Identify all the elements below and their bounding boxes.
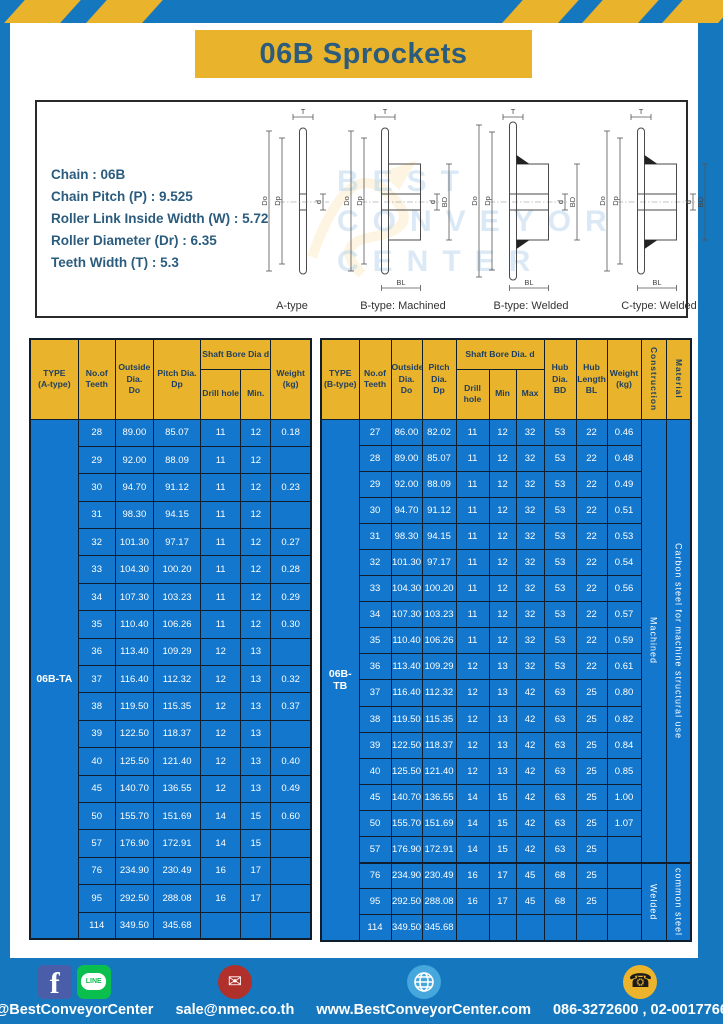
value-cell: 63 xyxy=(544,758,576,784)
value-cell: 114 xyxy=(78,912,115,939)
svg-text:Do: Do xyxy=(598,196,607,206)
value-cell: 14 xyxy=(456,784,489,810)
value-cell: 0.30 xyxy=(271,611,311,638)
value-cell: 42 xyxy=(516,837,544,863)
table-row: 06B-TA2889.0085.0711120.18 xyxy=(30,419,311,446)
value-cell: 32 xyxy=(78,529,115,556)
value-cell: 30 xyxy=(78,474,115,501)
facebook-icon[interactable]: f xyxy=(38,965,72,999)
sprocket-figures: TdDoDpA-typeTdBDBLDoDpB-type: MachinedTd… xyxy=(245,108,685,314)
table-row: 34107.30103.2311123253220.57 xyxy=(321,602,691,628)
value-cell: 112.32 xyxy=(422,680,456,706)
value-cell: 22 xyxy=(576,549,607,575)
value-cell: 45 xyxy=(78,775,115,802)
spec-table-b: TYPE (B-type) No.of Teeth Outside Dia. D… xyxy=(320,338,692,942)
value-cell: 17 xyxy=(489,863,516,889)
value-cell: 25 xyxy=(576,732,607,758)
value-cell: 12 xyxy=(241,446,271,473)
table-row: 39122.50118.3712134263250.84 xyxy=(321,732,691,758)
value-cell: 13 xyxy=(241,666,271,693)
value-cell: 11 xyxy=(456,549,489,575)
value-cell: 29 xyxy=(359,471,391,497)
value-cell: 35 xyxy=(359,628,391,654)
value-cell xyxy=(607,863,641,889)
value-cell: 0.57 xyxy=(607,602,641,628)
value-cell: 25 xyxy=(576,680,607,706)
svg-text:BD: BD xyxy=(696,196,705,207)
value-cell: 0.60 xyxy=(271,802,311,829)
value-cell: 53 xyxy=(544,549,576,575)
footer-website-group: www.BestConveyorCenter.com xyxy=(316,965,531,1018)
value-cell: 345.68 xyxy=(422,915,456,941)
value-cell: 11 xyxy=(201,501,241,528)
value-cell: 63 xyxy=(544,706,576,732)
value-cell: 16 xyxy=(456,863,489,889)
value-cell: 15 xyxy=(241,830,271,857)
value-cell: 12 xyxy=(489,471,516,497)
value-cell: 86.00 xyxy=(391,419,422,445)
value-cell: 39 xyxy=(359,732,391,758)
value-cell: 11 xyxy=(201,529,241,556)
value-cell xyxy=(544,915,576,941)
table-row: 50155.70151.6914154263251.07 xyxy=(321,810,691,836)
value-cell: 0.53 xyxy=(607,523,641,549)
value-cell: 12 xyxy=(201,720,241,747)
value-cell: 12 xyxy=(489,523,516,549)
value-cell: 38 xyxy=(78,693,115,720)
value-cell: 12 xyxy=(489,549,516,575)
table-row: 06B-TB2786.0082.0211123253220.46Machined… xyxy=(321,419,691,445)
value-cell: 53 xyxy=(544,497,576,523)
value-cell: 176.90 xyxy=(115,830,153,857)
value-cell: 37 xyxy=(78,666,115,693)
value-cell: 11 xyxy=(201,474,241,501)
value-cell: 288.08 xyxy=(153,885,200,912)
value-cell: 12 xyxy=(489,602,516,628)
value-cell xyxy=(241,912,271,939)
value-cell: 11 xyxy=(456,628,489,654)
value-cell: 12 xyxy=(489,576,516,602)
table-a-type: TYPE (A-type) No.of Teeth Outside Dia. D… xyxy=(29,338,312,940)
value-cell: 85.07 xyxy=(153,419,200,446)
value-cell: 68 xyxy=(544,863,576,889)
table-row: 38119.50115.3512134263250.82 xyxy=(321,706,691,732)
table-row: 40125.50121.4012134263250.85 xyxy=(321,758,691,784)
value-cell: 32 xyxy=(516,602,544,628)
col-header-drill-hole: Drill hole xyxy=(456,369,489,419)
value-cell: 57 xyxy=(359,837,391,863)
value-cell: 136.55 xyxy=(153,775,200,802)
svg-text:d: d xyxy=(428,200,437,204)
value-cell: 32 xyxy=(516,523,544,549)
value-cell: 115.35 xyxy=(153,693,200,720)
table-row: 57176.90172.911415426325 xyxy=(321,837,691,863)
table-row: 33104.30100.2011123253220.56 xyxy=(321,576,691,602)
svg-text:d: d xyxy=(684,200,693,204)
figure-caption: B-type: Welded xyxy=(493,300,568,312)
value-cell: 33 xyxy=(359,576,391,602)
value-cell: 12 xyxy=(489,445,516,471)
value-cell: 0.49 xyxy=(607,471,641,497)
value-cell: 53 xyxy=(544,602,576,628)
value-cell: 12 xyxy=(456,706,489,732)
value-cell: 35 xyxy=(78,611,115,638)
value-cell: 50 xyxy=(359,810,391,836)
value-cell: 94.70 xyxy=(391,497,422,523)
diagonal-stripe xyxy=(657,0,723,23)
value-cell: 22 xyxy=(576,576,607,602)
value-cell: 0.46 xyxy=(607,419,641,445)
value-cell: 104.30 xyxy=(115,556,153,583)
value-cell: 0.85 xyxy=(607,758,641,784)
value-cell: 38 xyxy=(359,706,391,732)
col-header-min: Min. xyxy=(241,369,271,419)
value-cell: 234.90 xyxy=(115,857,153,884)
type-label-cell: 06B-TB xyxy=(321,419,359,941)
col-header-max: Max xyxy=(516,369,544,419)
value-cell: 92.00 xyxy=(391,471,422,497)
value-cell: 11 xyxy=(201,419,241,446)
col-header-min: Min xyxy=(489,369,516,419)
value-cell: 30 xyxy=(359,497,391,523)
value-cell: 1.07 xyxy=(607,810,641,836)
value-cell: 34 xyxy=(359,602,391,628)
value-cell: 97.17 xyxy=(422,549,456,575)
value-cell: 32 xyxy=(516,497,544,523)
value-cell: 53 xyxy=(544,419,576,445)
value-cell: 16 xyxy=(201,857,241,884)
value-cell: 12 xyxy=(201,666,241,693)
value-cell: 37 xyxy=(359,680,391,706)
value-cell: 15 xyxy=(489,784,516,810)
value-cell: 12 xyxy=(241,556,271,583)
value-cell: 42 xyxy=(516,680,544,706)
table-row: 95292.50288.081617456825 xyxy=(321,889,691,915)
table-row: 114349.50345.68 xyxy=(321,915,691,941)
col-header-weight: Weight (kg) xyxy=(607,339,641,419)
value-cell: 94.15 xyxy=(422,523,456,549)
value-cell: 14 xyxy=(456,810,489,836)
value-cell: 140.70 xyxy=(391,784,422,810)
value-cell: 39 xyxy=(78,720,115,747)
value-cell: 0.82 xyxy=(607,706,641,732)
value-cell: 25 xyxy=(576,706,607,732)
material-cell: Carbon steel for machine structural use xyxy=(666,419,691,863)
table-row: 37116.40112.3212134263250.80 xyxy=(321,680,691,706)
value-cell: 172.91 xyxy=(153,830,200,857)
value-cell: 11 xyxy=(456,497,489,523)
table-b-type: TYPE (B-type) No.of Teeth Outside Dia. D… xyxy=(320,338,686,942)
value-cell: 151.69 xyxy=(422,810,456,836)
value-cell: 31 xyxy=(78,501,115,528)
value-cell: 155.70 xyxy=(115,802,153,829)
value-cell: 0.28 xyxy=(271,556,311,583)
value-cell: 15 xyxy=(489,837,516,863)
line-icon[interactable]: LINE xyxy=(77,965,111,999)
svg-text:BL: BL xyxy=(396,278,405,287)
value-cell xyxy=(271,446,311,473)
svg-text:T: T xyxy=(639,108,644,116)
value-cell: 106.26 xyxy=(422,628,456,654)
sprocket-figure-a-type: TdDoDpA-type xyxy=(245,108,339,314)
website-url[interactable]: www.BestConveyorCenter.com xyxy=(316,1002,531,1018)
sprocket-figure-c-type-welded: TdBDBLDoDpC-type: Welded xyxy=(595,108,723,314)
table-row: 2889.0085.0711123253220.48 xyxy=(321,445,691,471)
value-cell xyxy=(271,912,311,939)
value-cell: 16 xyxy=(456,889,489,915)
value-cell: 176.90 xyxy=(391,837,422,863)
svg-text:Do: Do xyxy=(470,196,479,206)
value-cell: 0.80 xyxy=(607,680,641,706)
value-cell: 22 xyxy=(576,445,607,471)
value-cell: 12 xyxy=(456,758,489,784)
svg-text:T: T xyxy=(383,108,388,116)
col-header-hub-dia: Hub Dia. BD xyxy=(544,339,576,419)
svg-text:Dp: Dp xyxy=(355,196,364,206)
value-cell xyxy=(271,720,311,747)
svg-text:Do: Do xyxy=(260,196,269,206)
svg-text:Dp: Dp xyxy=(483,196,492,206)
value-cell: 107.30 xyxy=(115,583,153,610)
value-cell: 100.20 xyxy=(422,576,456,602)
value-cell: 13 xyxy=(489,758,516,784)
value-cell: 136.55 xyxy=(422,784,456,810)
spec-line: Roller Diameter (Dr) : 6.35 xyxy=(51,230,268,252)
value-cell: 12 xyxy=(489,419,516,445)
value-cell: 45 xyxy=(516,889,544,915)
value-cell: 42 xyxy=(516,810,544,836)
value-cell: 106.26 xyxy=(153,611,200,638)
value-cell: 13 xyxy=(241,638,271,665)
value-cell: 12 xyxy=(241,474,271,501)
value-cell: 125.50 xyxy=(391,758,422,784)
value-cell: 14 xyxy=(201,802,241,829)
construction-cell: Welded xyxy=(641,863,666,941)
value-cell: 36 xyxy=(78,638,115,665)
diagram-box: BESTCONVEYORCENTER Chain : 06BChain Pitc… xyxy=(35,100,688,318)
email-address[interactable]: sale@nmec.co.th xyxy=(175,1002,294,1018)
value-cell: 32 xyxy=(516,445,544,471)
col-header-outside-dia: Outside Dia. Do xyxy=(115,339,153,419)
value-cell: 82.02 xyxy=(422,419,456,445)
svg-text:d: d xyxy=(556,200,565,204)
value-cell xyxy=(201,912,241,939)
value-cell: 0.32 xyxy=(271,666,311,693)
value-cell: 12 xyxy=(456,654,489,680)
construction-cell: Machined xyxy=(641,419,666,863)
value-cell xyxy=(456,915,489,941)
table-row: 3094.7091.1211123253220.51 xyxy=(321,497,691,523)
value-cell: 0.37 xyxy=(271,693,311,720)
value-cell: 32 xyxy=(516,419,544,445)
value-cell: 17 xyxy=(489,889,516,915)
value-cell: 12 xyxy=(489,497,516,523)
material-cell: common steel xyxy=(666,863,691,941)
value-cell: 94.15 xyxy=(153,501,200,528)
value-cell: 25 xyxy=(576,889,607,915)
value-cell: 25 xyxy=(576,837,607,863)
value-cell: 103.23 xyxy=(422,602,456,628)
value-cell: 13 xyxy=(241,775,271,802)
value-cell: 118.37 xyxy=(153,720,200,747)
value-cell xyxy=(607,915,641,941)
value-cell: 0.51 xyxy=(607,497,641,523)
value-cell: 0.23 xyxy=(271,474,311,501)
value-cell: 32 xyxy=(359,549,391,575)
value-cell: 140.70 xyxy=(115,775,153,802)
table-row: 36113.40109.2912133253220.61 xyxy=(321,654,691,680)
value-cell: 22 xyxy=(576,471,607,497)
value-cell: 11 xyxy=(201,446,241,473)
figure-caption: B-type: Machined xyxy=(360,300,446,312)
value-cell: 53 xyxy=(544,445,576,471)
value-cell: 27 xyxy=(359,419,391,445)
value-cell: 15 xyxy=(489,810,516,836)
value-cell: 12 xyxy=(241,501,271,528)
social-handle[interactable]: @BestConveyorCenter xyxy=(0,1002,153,1018)
col-header-outside-dia: Outside Dia. Do xyxy=(391,339,422,419)
table-row: 35110.40106.2611123253220.59 xyxy=(321,628,691,654)
value-cell: 110.40 xyxy=(391,628,422,654)
value-cell: 13 xyxy=(241,748,271,775)
value-cell: 22 xyxy=(576,497,607,523)
value-cell: 0.27 xyxy=(271,529,311,556)
value-cell: 122.50 xyxy=(391,732,422,758)
footer-email-group: ✉ sale@nmec.co.th xyxy=(175,965,294,1018)
col-header-type: TYPE (B-type) xyxy=(321,339,359,419)
value-cell: 22 xyxy=(576,602,607,628)
top-decorative-bar xyxy=(0,0,723,23)
value-cell xyxy=(271,638,311,665)
svg-text:T: T xyxy=(511,108,516,116)
value-cell: 25 xyxy=(576,810,607,836)
value-cell: 116.40 xyxy=(391,680,422,706)
col-header-weight: Weight (kg) xyxy=(271,339,311,419)
value-cell: 12 xyxy=(201,693,241,720)
value-cell: 13 xyxy=(241,720,271,747)
table-row: 2992.0088.0911123253220.49 xyxy=(321,471,691,497)
diagonal-stripe xyxy=(81,0,168,23)
value-cell: 11 xyxy=(456,523,489,549)
value-cell: 91.12 xyxy=(153,474,200,501)
svg-text:BL: BL xyxy=(524,278,533,287)
figure-caption: A-type xyxy=(276,300,308,312)
col-header-hub-length: Hub Length BL xyxy=(576,339,607,419)
value-cell: 155.70 xyxy=(391,810,422,836)
type-label-cell: 06B-TA xyxy=(30,419,78,939)
figure-caption: C-type: Welded xyxy=(621,300,697,312)
table-row: 3198.3094.1511123253220.53 xyxy=(321,523,691,549)
value-cell: 98.30 xyxy=(391,523,422,549)
value-cell: 12 xyxy=(241,419,271,446)
value-cell: 292.50 xyxy=(115,885,153,912)
value-cell: 12 xyxy=(201,775,241,802)
value-cell xyxy=(516,915,544,941)
value-cell: 12 xyxy=(456,732,489,758)
spec-line: Teeth Width (T) : 5.3 xyxy=(51,252,268,274)
col-header-shaft-bore: Shaft Bore Dia d xyxy=(201,339,271,369)
value-cell: 29 xyxy=(78,446,115,473)
diagonal-stripe xyxy=(0,0,85,23)
value-cell: 13 xyxy=(489,706,516,732)
value-cell: 13 xyxy=(489,654,516,680)
value-cell: 28 xyxy=(78,419,115,446)
value-cell: 1.00 xyxy=(607,784,641,810)
value-cell: 122.50 xyxy=(115,720,153,747)
spec-line: Chain : 06B xyxy=(51,164,268,186)
value-cell: 121.40 xyxy=(153,748,200,775)
value-cell: 230.49 xyxy=(422,863,456,889)
diagonal-stripe xyxy=(497,0,584,23)
value-cell: 22 xyxy=(576,523,607,549)
value-cell xyxy=(271,830,311,857)
value-cell xyxy=(489,915,516,941)
value-cell: 32 xyxy=(516,549,544,575)
value-cell xyxy=(271,501,311,528)
value-cell: 110.40 xyxy=(115,611,153,638)
col-header-pitch-dia: Pitch Dia. Dp xyxy=(422,339,456,419)
table-row: 32101.3097.1711123253220.54 xyxy=(321,549,691,575)
value-cell: 53 xyxy=(544,628,576,654)
value-cell: 103.23 xyxy=(153,583,200,610)
svg-text:BD: BD xyxy=(568,196,577,207)
value-cell: 125.50 xyxy=(115,748,153,775)
value-cell: 91.12 xyxy=(422,497,456,523)
svg-text:T: T xyxy=(301,108,306,116)
value-cell: 151.69 xyxy=(153,802,200,829)
value-cell: 292.50 xyxy=(391,889,422,915)
value-cell: 36 xyxy=(359,654,391,680)
value-cell: 17 xyxy=(241,857,271,884)
value-cell: 88.09 xyxy=(153,446,200,473)
value-cell: 45 xyxy=(516,863,544,889)
value-cell: 100.20 xyxy=(153,556,200,583)
value-cell: 0.40 xyxy=(271,748,311,775)
value-cell: 53 xyxy=(544,523,576,549)
phone-numbers[interactable]: 086-3272600 , 02-0017766 xyxy=(553,1002,723,1018)
value-cell: 34 xyxy=(78,583,115,610)
svg-text:Dp: Dp xyxy=(273,196,282,206)
svg-text:Dp: Dp xyxy=(611,196,620,206)
value-cell: 12 xyxy=(456,680,489,706)
value-cell: 97.17 xyxy=(153,529,200,556)
value-cell: 116.40 xyxy=(115,666,153,693)
value-cell: 113.40 xyxy=(115,638,153,665)
value-cell: 288.08 xyxy=(422,889,456,915)
phone-icon[interactable]: ☎ xyxy=(623,965,657,999)
value-cell: 63 xyxy=(544,732,576,758)
title-banner: 06B Sprockets xyxy=(195,30,532,78)
value-cell: 89.00 xyxy=(115,419,153,446)
value-cell: 63 xyxy=(544,810,576,836)
value-cell: 94.70 xyxy=(115,474,153,501)
value-cell: 76 xyxy=(359,863,391,889)
value-cell: 0.56 xyxy=(607,576,641,602)
email-icon[interactable]: ✉ xyxy=(218,965,252,999)
value-cell: 114 xyxy=(359,915,391,941)
value-cell: 25 xyxy=(576,863,607,889)
spec-line: Chain Pitch (P) : 9.525 xyxy=(51,186,268,208)
svg-text:BL: BL xyxy=(652,278,661,287)
globe-icon[interactable] xyxy=(407,965,441,999)
value-cell: 32 xyxy=(516,471,544,497)
value-cell: 109.29 xyxy=(422,654,456,680)
value-cell: 32 xyxy=(516,654,544,680)
value-cell: 119.50 xyxy=(391,706,422,732)
value-cell: 40 xyxy=(78,748,115,775)
spec-table-a: TYPE (A-type) No.of Teeth Outside Dia. D… xyxy=(29,338,312,940)
chain-specs: Chain : 06BChain Pitch (P) : 9.525Roller… xyxy=(51,164,268,274)
